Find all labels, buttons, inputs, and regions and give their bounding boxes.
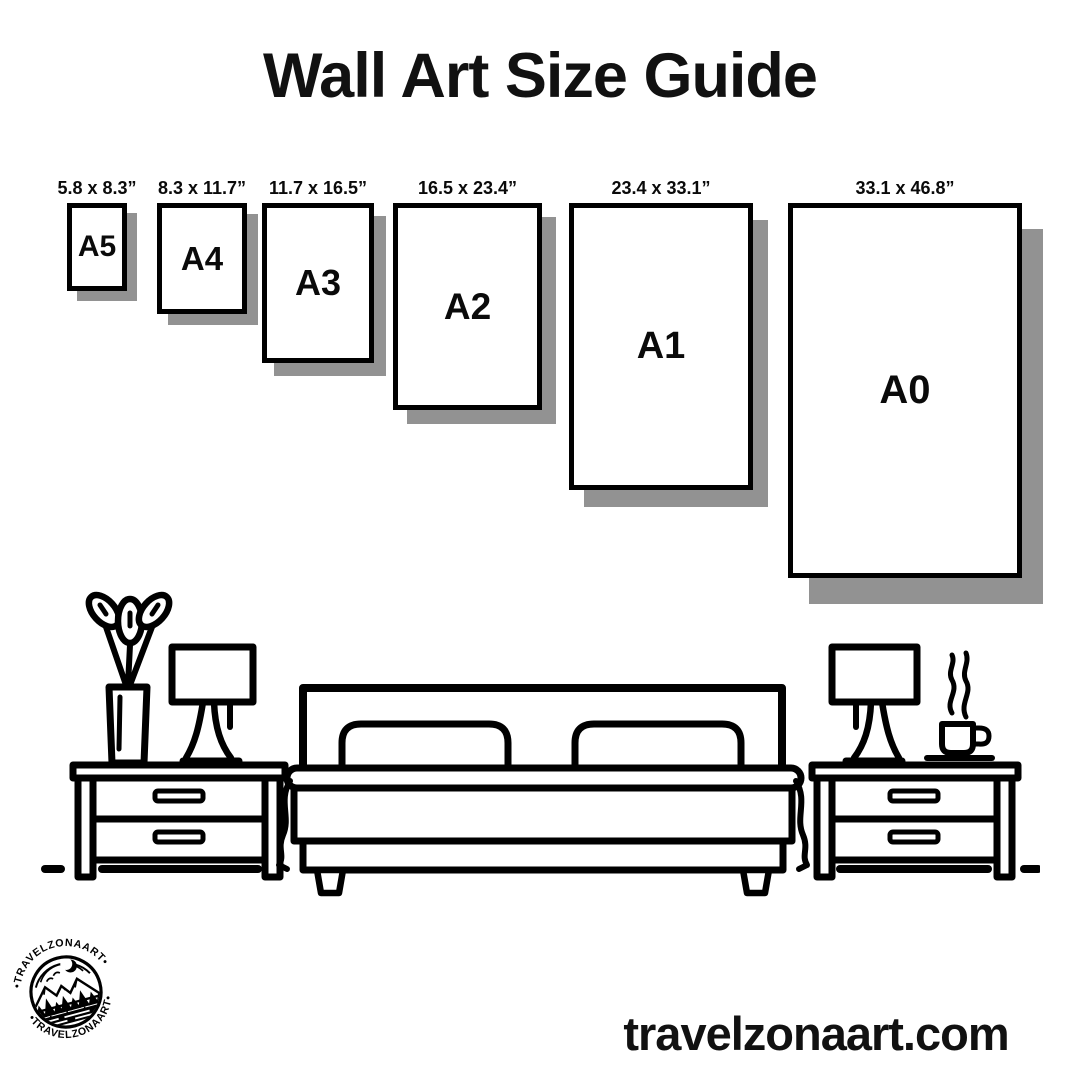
size-name-a5: A5: [78, 230, 116, 264]
page-title: Wall Art Size Guide: [0, 40, 1080, 112]
size-guide-poster: Wall Art Size Guide 5.8 x 8.3” A5 8.3 x …: [0, 0, 1080, 1080]
logo-badge-icon: •TRAVELZONAART• •TRAVELZONAART•: [0, 922, 136, 1062]
size-dimensions-a4: 8.3 x 11.7”: [158, 178, 246, 199]
size-name-a2: A2: [444, 286, 491, 328]
nightstand-right-icon: [812, 765, 1018, 877]
website-url: travelzonaart.com: [556, 1006, 1076, 1061]
size-box-a3: 11.7 x 16.5” A3: [262, 203, 374, 363]
size-name-a1: A1: [637, 325, 686, 368]
nightstand-left-icon: [73, 765, 285, 877]
size-dimensions-a0: 33.1 x 46.8”: [855, 178, 954, 199]
size-dimensions-a2: 16.5 x 23.4”: [418, 178, 517, 199]
size-name-a0: A0: [879, 368, 930, 413]
table-lamp-left-icon: [172, 647, 253, 761]
plant-vase-icon: [83, 590, 175, 763]
bedroom-illustration: [40, 585, 1040, 900]
table-lamp-right-icon: [832, 647, 917, 761]
size-name-a4: A4: [181, 240, 223, 278]
size-box-a4: 8.3 x 11.7” A4: [157, 203, 247, 314]
size-dimensions-a1: 23.4 x 33.1”: [611, 178, 710, 199]
size-name-a3: A3: [295, 262, 341, 304]
size-dimensions-a3: 11.7 x 16.5”: [269, 178, 367, 199]
blanket-drape-right: [796, 781, 807, 869]
size-dimensions-a5: 5.8 x 8.3”: [57, 178, 136, 199]
double-bed-icon: [279, 688, 807, 893]
size-box-a1: 23.4 x 33.1” A1: [569, 203, 753, 490]
coffee-cup-icon: [927, 653, 992, 758]
size-box-a5: 5.8 x 8.3” A5: [67, 203, 127, 291]
size-box-a2: 16.5 x 23.4” A2: [393, 203, 542, 410]
size-box-a0: 33.1 x 46.8” A0: [788, 203, 1022, 578]
